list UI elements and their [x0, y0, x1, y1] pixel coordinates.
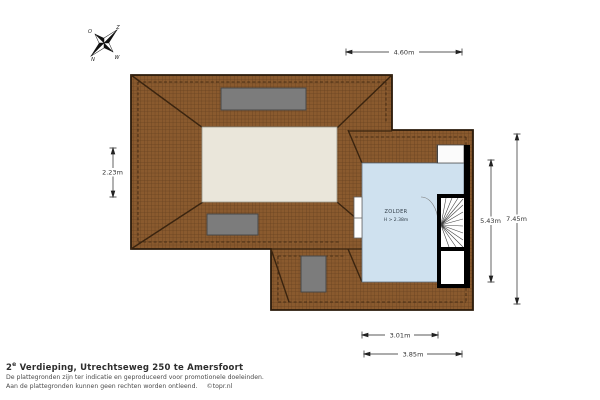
page-title: 2e Verdieping, Utrechtseweg 250 te Amers…	[6, 361, 264, 373]
dimension-right-outer: 7.45m	[503, 134, 530, 304]
compass-rose: O Z N W	[81, 20, 126, 65]
dimension-top-label: 4.60m	[394, 49, 415, 57]
dimension-left: 2.23m	[99, 148, 126, 197]
flat-roof-section	[202, 127, 337, 202]
window	[354, 197, 362, 238]
dormer-window-left	[207, 214, 258, 235]
compass-label-east: O	[88, 29, 92, 35]
dimension-bottom-inner-label: 3.01m	[390, 332, 411, 340]
dimension-top: 4.60m	[346, 48, 462, 57]
dimension-bottom-inner: 3.01m	[362, 331, 438, 340]
dormer-window-top	[221, 88, 306, 110]
dormer-window-bottom	[301, 256, 326, 292]
dimension-left-label: 2.23m	[102, 169, 123, 177]
compass-label-south: Z	[115, 25, 120, 31]
attic-room-zolder: ZOLDER H > 2.38m	[354, 145, 470, 288]
room-name-label: ZOLDER	[384, 209, 407, 215]
compass-label-west: W	[115, 55, 121, 61]
disclaimer-line-2: Aan de plattegronden kunnen geen rechten…	[6, 383, 264, 391]
dimension-right-outer-label: 7.45m	[506, 215, 527, 223]
floor-plan-canvas: ZOLDER H > 2.38m 4.60m 2.23m	[0, 0, 600, 400]
dimension-bottom-outer-label: 3.85m	[403, 351, 424, 359]
dimension-right-inner: 5.43m	[477, 160, 504, 282]
credit-text: ©topr.nl	[207, 383, 233, 390]
stairwell-area	[437, 198, 464, 284]
roof-dormer-white	[437, 145, 464, 163]
dimension-bottom-outer: 3.85m	[364, 350, 462, 359]
floor-plan-page: ZOLDER H > 2.38m 4.60m 2.23m	[0, 0, 600, 400]
dimension-right-inner-label: 5.43m	[480, 217, 501, 225]
room-height-label: H > 2.38m	[384, 217, 408, 223]
title-block: 2e Verdieping, Utrechtseweg 250 te Amers…	[6, 361, 264, 391]
compass-label-north: N	[91, 57, 95, 63]
disclaimer-line-1: De plattegronden zijn ter indicatie en g…	[6, 374, 264, 382]
